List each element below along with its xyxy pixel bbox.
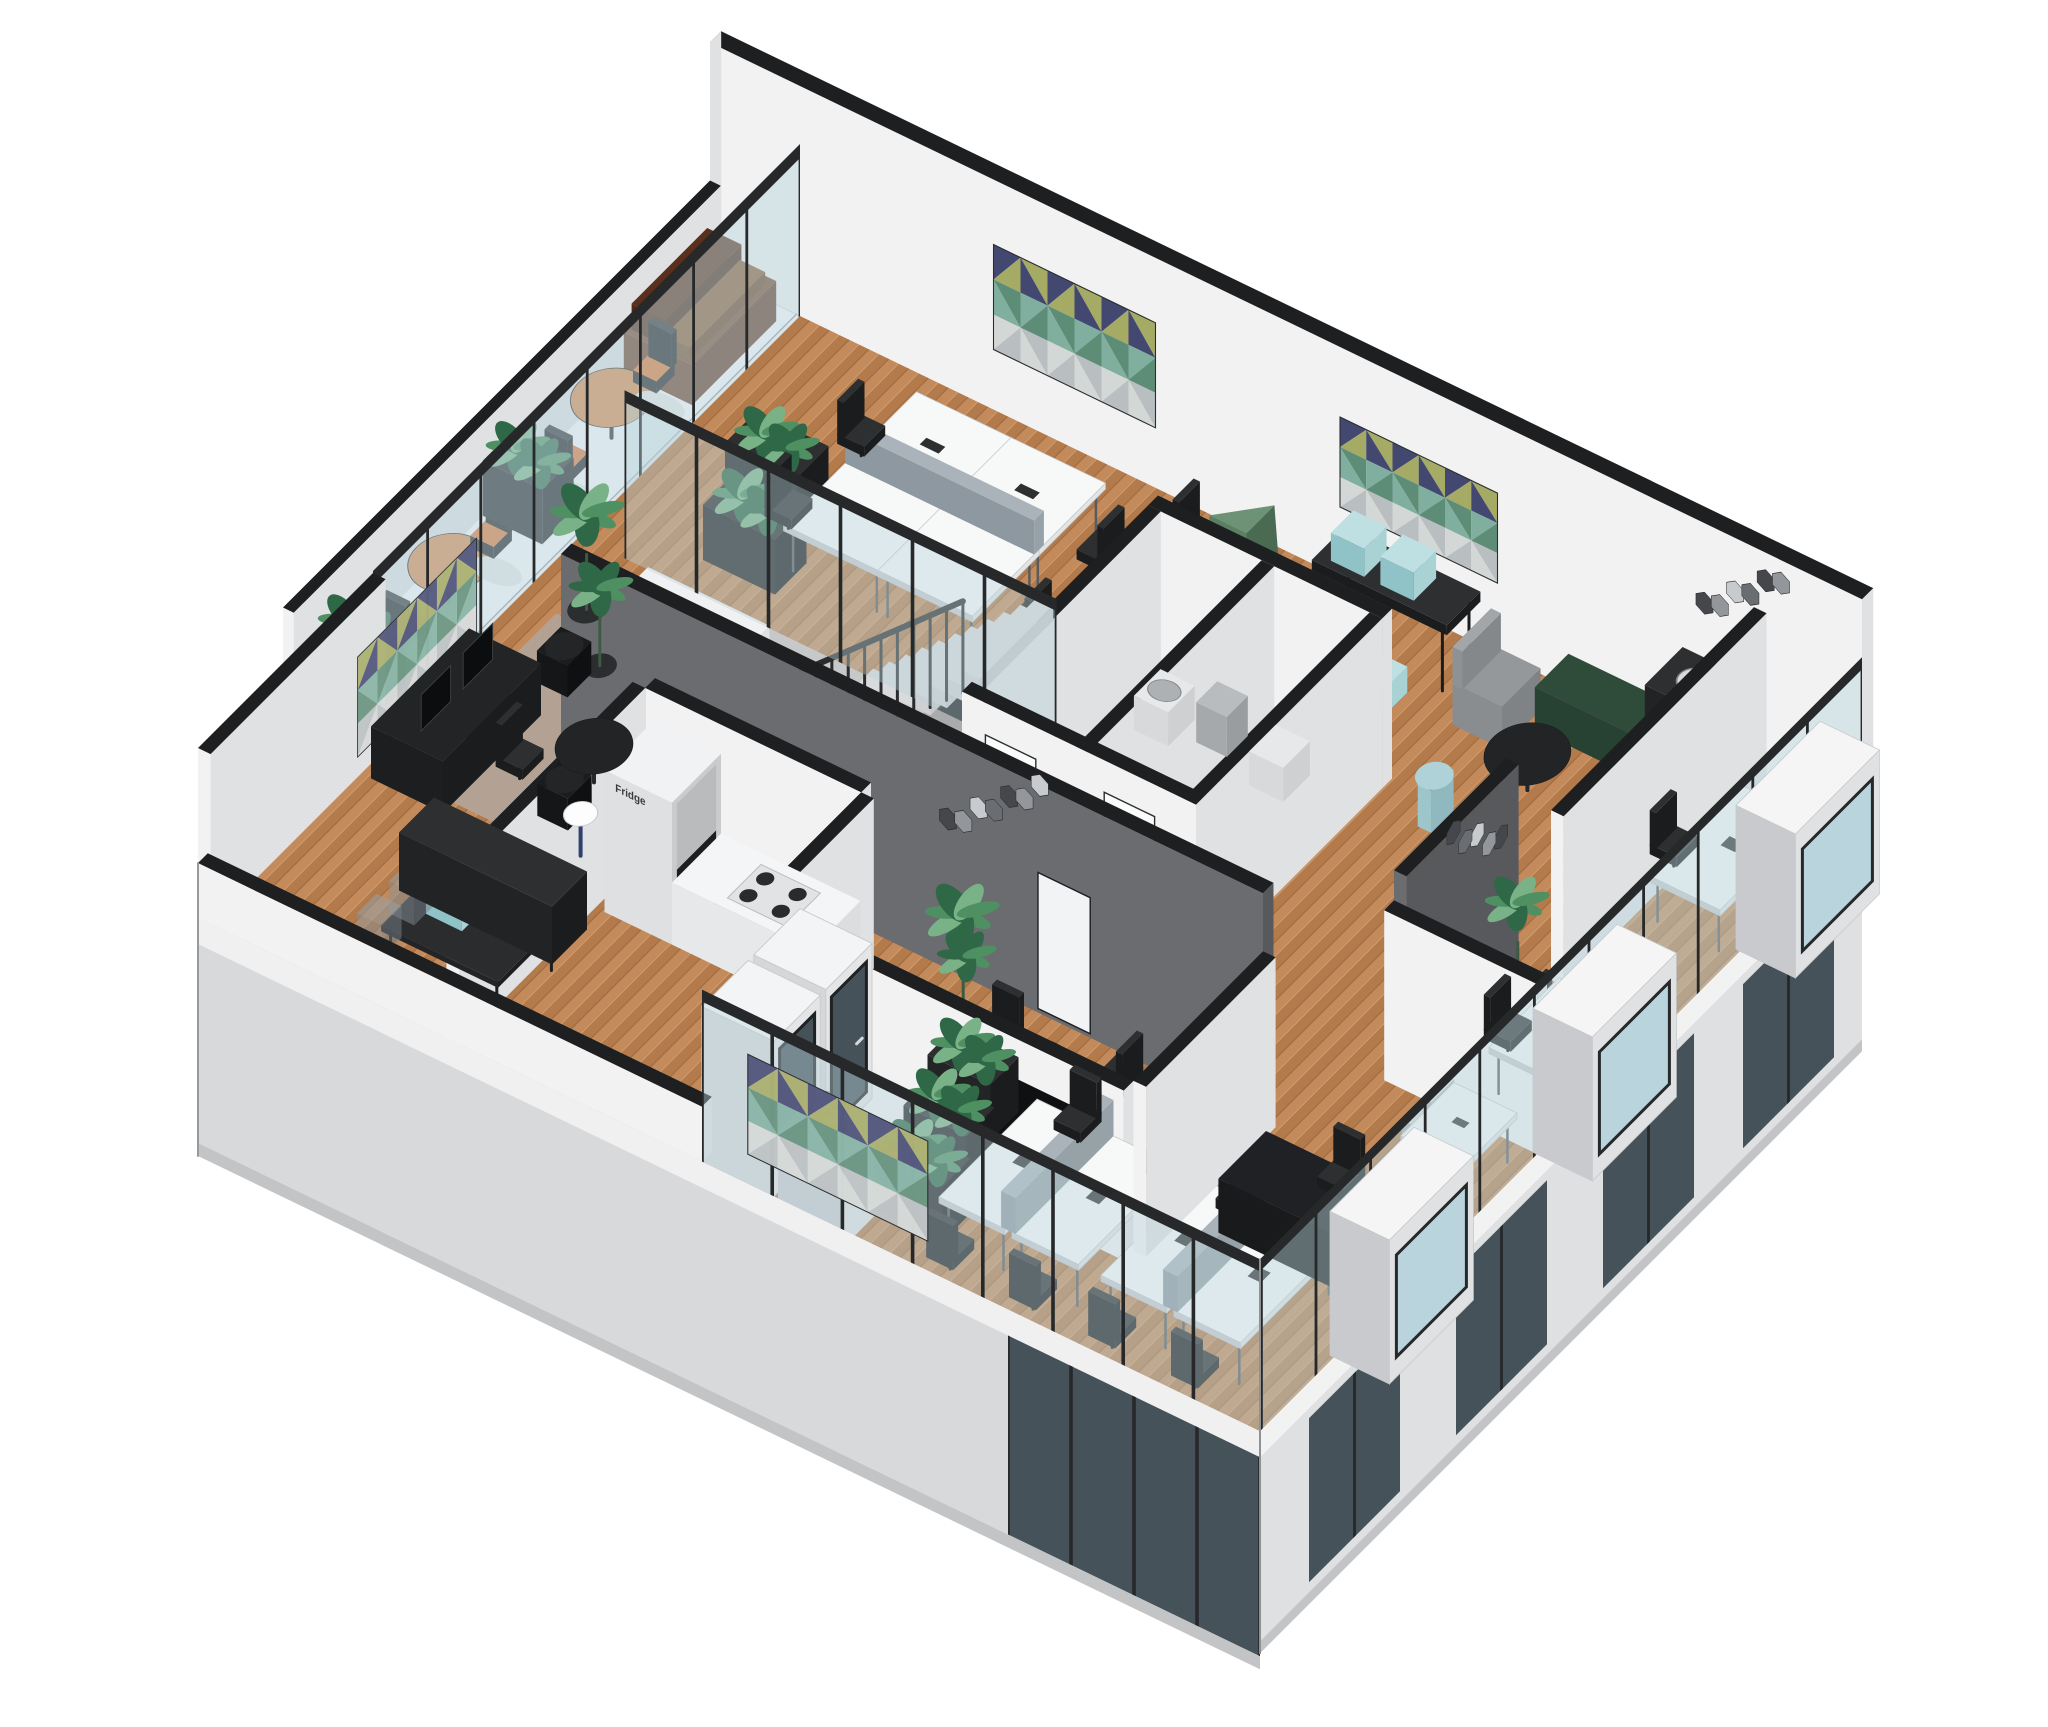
isometric-office-rendering: Fridge	[40, 16, 2048, 1711]
floorplan-canvas: Fridge	[40, 16, 2048, 1711]
